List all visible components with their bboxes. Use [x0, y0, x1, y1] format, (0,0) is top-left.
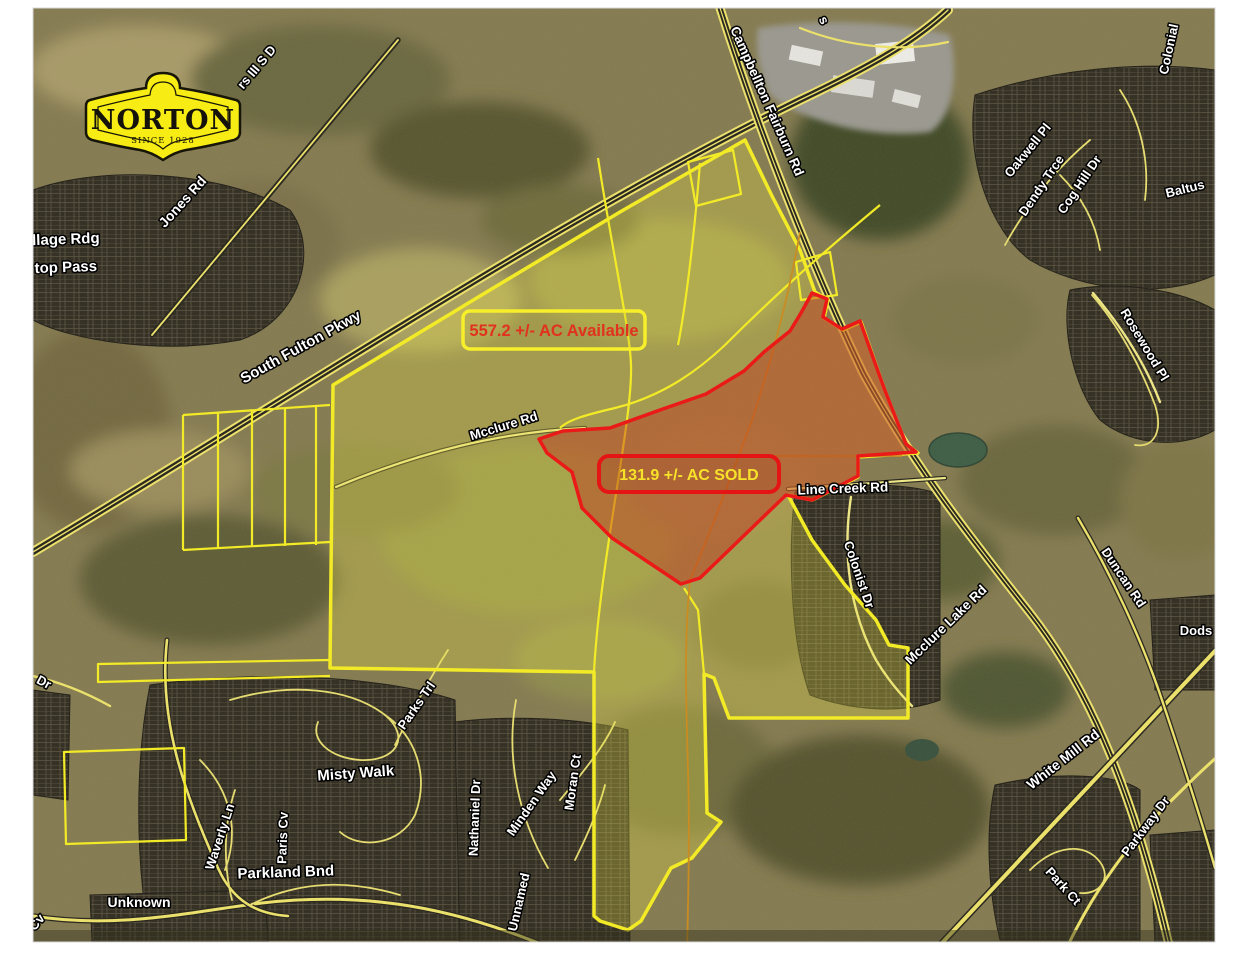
road-label-paris-cv: Paris Cv: [274, 811, 291, 864]
logo-name: NORTON: [91, 105, 235, 136]
available-acreage-label: 557.2 +/- AC Available: [469, 322, 638, 340]
road-label-llage-rdg: llage Rdg: [32, 230, 100, 249]
map-canvas: rs III S DsJones Rdllage Rdgtop PassSout…: [10, 8, 1242, 958]
road-label-top-pass: top Pass: [34, 258, 97, 277]
road-label-line-creek-rd: Line Creek Rd: [797, 479, 888, 497]
aerial-map: rs III S DsJones Rdllage Rdgtop PassSout…: [0, 0, 1242, 960]
road-label-dods: Dods: [1180, 623, 1213, 638]
logo-since: SINCE 1928: [131, 136, 195, 146]
map-bottom-shadow: [33, 930, 1215, 942]
listing-map-page: rs III S DsJones Rdllage Rdgtop PassSout…: [0, 0, 1242, 960]
road-label-unknown: Unknown: [108, 894, 171, 910]
available-badge: 557.2 +/- AC Available: [463, 311, 645, 349]
road-label-parkland-bnd: Parkland Bnd: [237, 862, 334, 882]
sold-acreage-label: 131.9 +/- AC SOLD: [619, 467, 758, 484]
sold-badge: 131.9 +/- AC SOLD: [599, 456, 779, 492]
road-label-nathaniel-dr: Nathaniel Dr: [466, 779, 484, 856]
